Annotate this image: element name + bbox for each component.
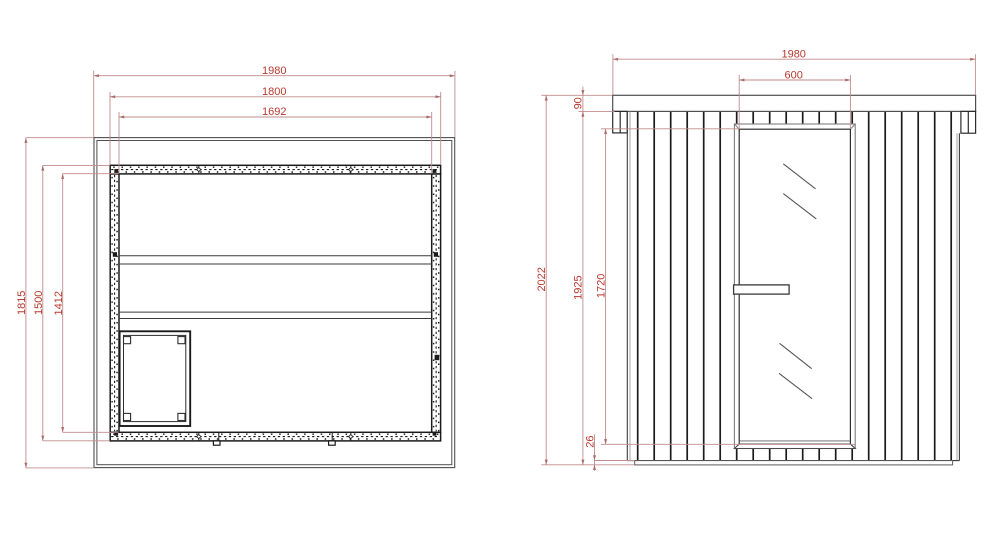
svg-text:1412: 1412 [53, 291, 65, 315]
svg-text:1980: 1980 [781, 48, 805, 60]
svg-text:1815: 1815 [16, 291, 28, 315]
svg-text:1800: 1800 [262, 86, 286, 98]
svg-text:26: 26 [584, 435, 596, 447]
svg-text:1925: 1925 [573, 275, 585, 299]
svg-text:2022: 2022 [536, 267, 548, 291]
svg-text:1720: 1720 [595, 274, 607, 298]
svg-text:1500: 1500 [33, 291, 45, 315]
svg-text:1980: 1980 [262, 65, 286, 77]
svg-text:600: 600 [785, 69, 803, 81]
svg-text:1692: 1692 [262, 106, 286, 118]
